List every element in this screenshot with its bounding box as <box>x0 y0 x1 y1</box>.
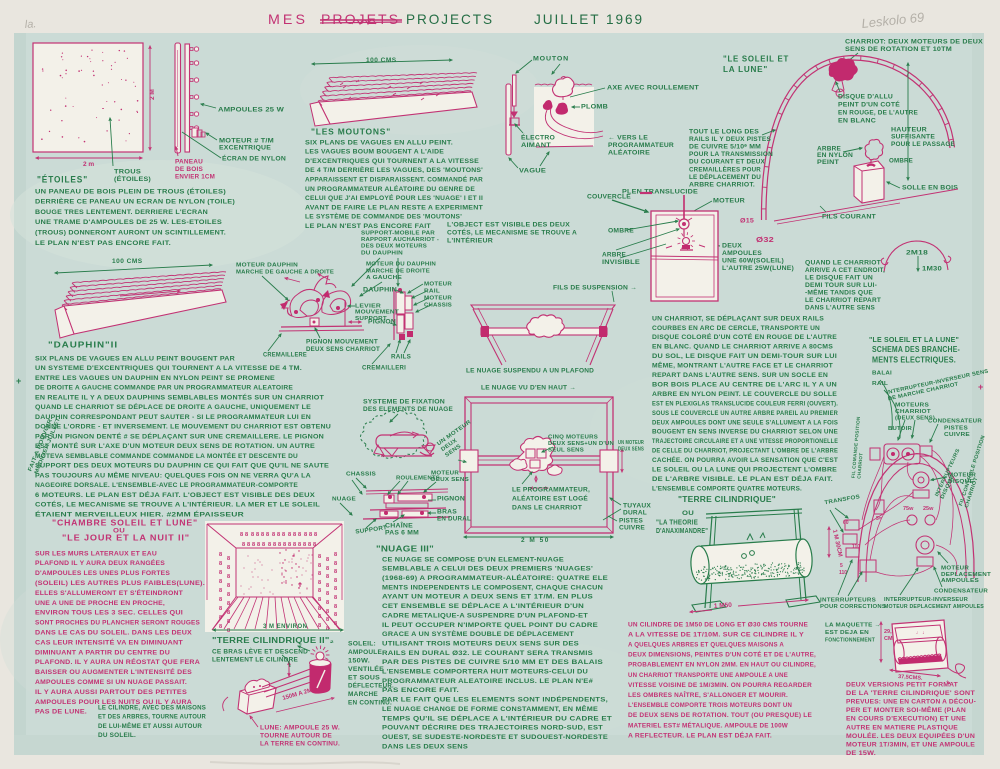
svg-text:8: 8 <box>227 601 230 607</box>
svg-text:CE NUAGE SE COMPOSE D'UN ELEME: CE NUAGE SE COMPOSE D'UN ELEMENT-NUAGESE… <box>382 556 613 750</box>
svg-text:PLEN TRANSLUCIDE: PLEN TRANSLUCIDE <box>622 188 698 195</box>
svg-text:8: 8 <box>313 542 316 548</box>
svg-text:8: 8 <box>318 588 321 594</box>
svg-text:8: 8 <box>334 578 337 584</box>
svg-text:AMPOULES 25 W: AMPOULES 25 W <box>218 106 284 113</box>
svg-text:8: 8 <box>219 588 222 594</box>
svg-text:DAUPHIN: DAUPHIN <box>363 288 397 294</box>
svg-text:PISTESCUIVRE: PISTESCUIVRE <box>944 425 970 438</box>
svg-text:8: 8 <box>318 606 321 612</box>
svg-text:Ø32: Ø32 <box>756 235 774 244</box>
svg-text:8: 8 <box>326 600 329 606</box>
svg-text:8: 8 <box>326 566 329 572</box>
svg-text:8: 8 <box>283 542 286 548</box>
svg-text:8: 8 <box>298 542 301 548</box>
svg-text:"LE SOLEIL ET LA LUNE": "LE SOLEIL ET LA LUNE" <box>869 335 959 344</box>
svg-text:8: 8 <box>326 574 329 580</box>
svg-text:8: 8 <box>334 552 337 558</box>
svg-text:8: 8 <box>268 542 271 548</box>
svg-text:8: 8 <box>318 580 321 586</box>
svg-text:8: 8 <box>227 610 230 616</box>
svg-text:75w: 75w <box>903 506 914 512</box>
svg-text:CREMAILLERI: CREMAILLERI <box>362 366 406 372</box>
svg-text:8: 8 <box>261 532 264 538</box>
svg-text:VAGUE: VAGUE <box>519 167 546 174</box>
svg-text:CONDENSATEUR: CONDENSATEUR <box>934 588 988 594</box>
svg-text:TOUT LE LONG DESRAILS IL Y DEU: TOUT LE LONG DESRAILS IL Y DEUX PISTESDE… <box>689 128 773 188</box>
svg-text:8: 8 <box>334 595 337 601</box>
svg-text:CREMAILLERE: CREMAILLERE <box>263 353 307 359</box>
svg-text:8: 8 <box>262 542 265 548</box>
svg-text:JUILLET 1969: JUILLET 1969 <box>534 11 644 27</box>
svg-text:8: 8 <box>303 542 306 548</box>
svg-text:8: 8 <box>293 542 296 548</box>
svg-text:2M18: 2M18 <box>906 249 928 256</box>
svg-text:8: 8 <box>334 561 337 567</box>
svg-text:8: 8 <box>219 597 222 603</box>
svg-text:"LE JOUR ET LA NUIT II": "LE JOUR ET LA NUIT II" <box>62 533 190 543</box>
svg-text:8: 8 <box>334 604 337 610</box>
svg-text:8: 8 <box>334 569 337 575</box>
svg-text:8: 8 <box>252 542 255 548</box>
svg-text:8: 8 <box>227 565 230 571</box>
svg-text:8: 8 <box>219 570 222 576</box>
svg-text:8: 8 <box>219 579 222 585</box>
svg-text:8: 8 <box>304 532 307 538</box>
svg-text:CONDENSATEUR: CONDENSATEUR <box>928 418 982 424</box>
svg-text:8: 8 <box>318 597 321 603</box>
svg-text:8: 8 <box>219 552 222 558</box>
svg-text:PROJETS: PROJETS <box>321 11 400 27</box>
svg-text:♩ ♩: ♩ ♩ <box>916 630 927 636</box>
svg-text:8: 8 <box>227 583 230 589</box>
svg-text:8: 8 <box>278 542 281 548</box>
svg-text:ÉLECTROAIMANT: ÉLECTROAIMANT <box>521 132 555 149</box>
svg-text:8: 8 <box>240 532 243 538</box>
svg-text:8: 8 <box>318 623 321 629</box>
svg-text:"NUAGE III": "NUAGE III" <box>376 544 434 554</box>
svg-text:CE BRAS LÈVE ET DESCENDLENTEME: CE BRAS LÈVE ET DESCENDLENTEMENT LE CILI… <box>212 648 309 664</box>
svg-text:8: 8 <box>326 583 329 589</box>
svg-text:8: 8 <box>293 532 296 538</box>
svg-text:8: 8 <box>227 619 230 625</box>
svg-text:8: 8 <box>326 557 329 563</box>
svg-text:5: 5 <box>840 563 843 569</box>
svg-text:NUAGE: NUAGE <box>332 497 356 503</box>
svg-text:AXE AVEC ROULLEMENT: AXE AVEC ROULLEMENT <box>607 84 700 91</box>
svg-text:PIGNON MOUVEMENTDEUX SENS CHAR: PIGNON MOUVEMENTDEUX SENS CHARRIOT <box>306 340 380 353</box>
svg-text:8: 8 <box>227 574 230 580</box>
svg-text:8: 8 <box>334 586 337 592</box>
svg-text:8: 8 <box>282 532 285 538</box>
svg-text:8: 8 <box>247 542 250 548</box>
svg-text:la.: la. <box>24 18 36 31</box>
svg-text:8: 8 <box>334 612 337 618</box>
svg-text:8: 8 <box>314 532 317 538</box>
svg-text:"TERRE CILINDRIQUE": "TERRE CILINDRIQUE" <box>678 495 776 504</box>
svg-text:OMBRE: OMBRE <box>608 227 634 234</box>
svg-text:8: 8 <box>288 542 291 548</box>
svg-text:5=: 5= <box>876 516 882 522</box>
svg-text:8: 8 <box>326 626 329 632</box>
svg-text:BUTOIR: BUTOIR <box>888 426 912 432</box>
svg-text:8: 8 <box>242 542 245 548</box>
svg-text:8: 8 <box>277 532 280 538</box>
svg-text:8: 8 <box>219 624 222 630</box>
svg-text:8: 8 <box>273 542 276 548</box>
svg-text:+: + <box>16 376 21 386</box>
svg-text:8: 8 <box>219 606 222 612</box>
svg-text:1M30: 1M30 <box>922 265 942 272</box>
svg-text:2 m: 2 m <box>83 161 94 168</box>
svg-text:OMBRE: OMBRE <box>889 157 913 164</box>
svg-text:FILS COURANT: FILS COURANT <box>822 213 877 220</box>
svg-text:DEUX VERSIONS PETIT FORMATDE L: DEUX VERSIONS PETIT FORMATDE LA 'TERRE C… <box>846 681 976 757</box>
svg-text:8: 8 <box>334 621 337 627</box>
svg-text:"ÉTOILES": "ÉTOILES" <box>37 174 88 185</box>
svg-text:PISTESCUIVRE: PISTESCUIVRE <box>619 517 645 531</box>
svg-text:8: 8 <box>257 542 260 548</box>
svg-text:MOUTON: MOUTON <box>533 55 569 62</box>
svg-text:LUNE: AMPOULE 25 W.TOURNE AUTO: LUNE: AMPOULE 25 W.TOURNE AUTOUR DELA TE… <box>260 726 340 748</box>
svg-text:MOTEUR # T/MEXCENTRIQUE: MOTEUR # T/MEXCENTRIQUE <box>219 137 274 151</box>
svg-text:UN CHARRIOT, SE DÉPLAÇANT SUR: UN CHARRIOT, SE DÉPLAÇANT SUR DEUX RAILS… <box>652 313 839 492</box>
svg-text:8: 8 <box>318 563 321 569</box>
svg-text:3 M ENVIRON: 3 M ENVIRON <box>263 624 308 630</box>
svg-text:MOTEUR: MOTEUR <box>713 197 745 204</box>
svg-text:8: 8 <box>326 591 329 597</box>
svg-text:8: 8 <box>308 542 311 548</box>
svg-text:8: 8 <box>326 617 329 623</box>
svg-text:8: 8 <box>266 532 269 538</box>
svg-text:SYSTEME DE FIXATIONDES ELEMENT: SYSTEME DE FIXATIONDES ELEMENTS DE NUAGE <box>363 398 453 413</box>
svg-text:LE NUAGE VU D'EN HAUT →: LE NUAGE VU D'EN HAUT → <box>481 384 576 391</box>
svg-text:PLOMB: PLOMB <box>581 103 608 110</box>
svg-text:100 CMS: 100 CMS <box>112 258 143 265</box>
svg-text:60: 60 <box>843 520 849 526</box>
svg-text:PROJECTS: PROJECTS <box>406 11 494 27</box>
svg-text:8: 8 <box>219 561 222 567</box>
svg-text:8: 8 <box>288 532 291 538</box>
svg-text:8: 8 <box>227 628 230 634</box>
svg-text:LE PROGRAMMATEUR,ALÉATOIRE EST: LE PROGRAMMATEUR,ALÉATOIRE EST LOGÉDANS … <box>512 486 590 511</box>
svg-text:100 CMS: 100 CMS <box>366 57 397 64</box>
svg-text:MES: MES <box>268 11 308 27</box>
svg-text:2 M 50: 2 M 50 <box>521 537 550 544</box>
svg-text:PIGNON: PIGNON <box>368 320 396 326</box>
svg-text:25w: 25w <box>923 506 934 512</box>
svg-text:8: 8 <box>245 532 248 538</box>
svg-text:FILS DE SUSPENSION →: FILS DE SUSPENSION → <box>553 284 637 291</box>
svg-text:8: 8 <box>227 592 230 598</box>
svg-text:8: 8 <box>326 609 329 615</box>
svg-text:8: 8 <box>318 554 321 560</box>
svg-text:ÉCRAN DE NYLON: ÉCRAN DE NYLON <box>222 153 286 162</box>
svg-text:LE NUAGE SUSPENDU A UN PLAFOND: LE NUAGE SUSPENDU A UN PLAFOND <box>466 367 594 374</box>
svg-text:2 M: 2 M <box>149 89 156 100</box>
svg-text:SCHEMA DES BRANCHE-MENTS ELECT: SCHEMA DES BRANCHE-MENTS ELECTRIQUES. <box>872 345 960 364</box>
svg-text:8: 8 <box>251 532 254 538</box>
svg-text:UN MOTEURDEUX SENS: UN MOTEURDEUX SENS <box>618 440 644 453</box>
svg-text:"TERRE CILINDRIQUE II"₂: "TERRE CILINDRIQUE II"₂ <box>212 636 334 645</box>
svg-text:"CHAMBRE SOLEIL ET LUNE": "CHAMBRE SOLEIL ET LUNE" <box>52 518 198 528</box>
svg-text:RAILS: RAILS <box>391 355 411 361</box>
svg-text:Ø15: Ø15 <box>740 217 754 224</box>
svg-text:8: 8 <box>318 614 321 620</box>
svg-text:8: 8 <box>309 532 312 538</box>
svg-text:8: 8 <box>227 556 230 562</box>
svg-text:CHASSIS: CHASSIS <box>346 472 376 478</box>
svg-text:"LES MOUTONS": "LES MOUTONS" <box>311 127 391 137</box>
svg-text:8: 8 <box>318 571 321 577</box>
svg-text:110: 110 <box>852 544 860 550</box>
svg-text:8: 8 <box>256 532 259 538</box>
svg-text:8: 8 <box>298 532 301 538</box>
svg-text:8: 8 <box>219 615 222 621</box>
svg-text:"DAUPHIN"II: "DAUPHIN"II <box>48 340 118 350</box>
svg-text:MOTEURRAILMOTEURCHASSIS: MOTEURRAILMOTEURCHASSIS <box>424 282 453 309</box>
svg-text:QUAND LE CHARRIOTARRIVE A CET: QUAND LE CHARRIOTARRIVE A CET ENDROIT,LE… <box>805 259 885 311</box>
svg-text:1 M50: 1 M50 <box>714 602 733 610</box>
svg-text:8: 8 <box>272 532 275 538</box>
svg-text:+: + <box>978 382 983 392</box>
svg-text:OU: OU <box>682 510 694 517</box>
svg-text:PIGNON: PIGNON <box>437 497 465 503</box>
